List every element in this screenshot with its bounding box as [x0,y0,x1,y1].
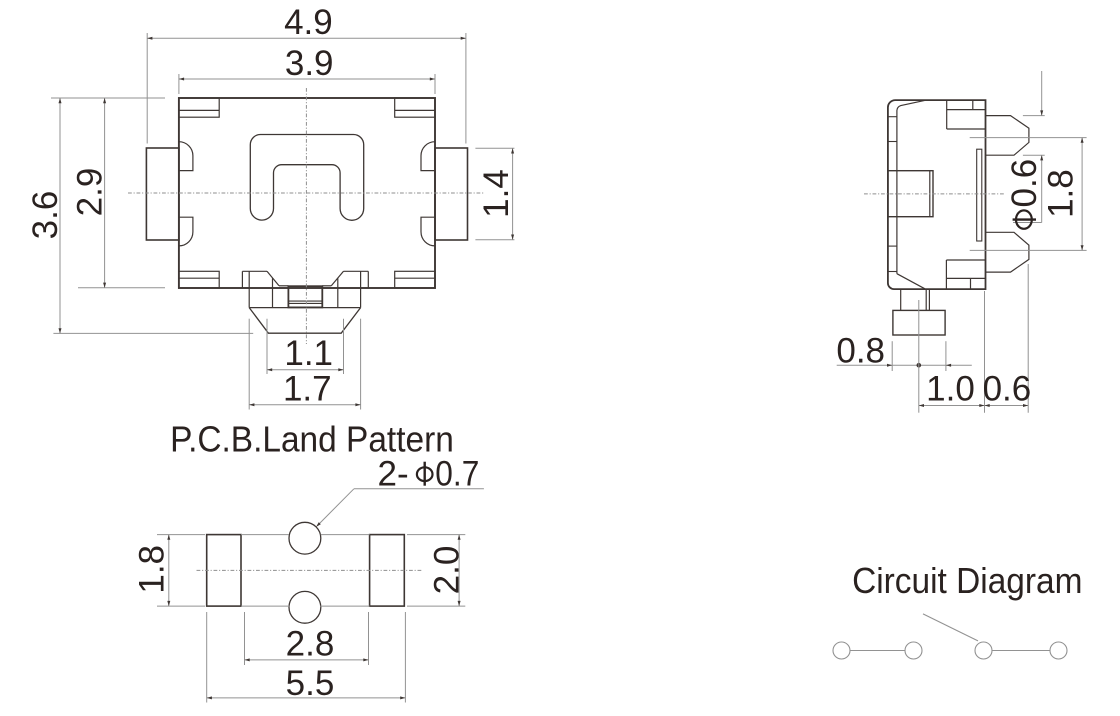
svg-text:1.0: 1.0 [926,369,975,408]
svg-text:2.8: 2.8 [286,625,335,664]
svg-text:P.C.B.Land Pattern: P.C.B.Land Pattern [170,419,454,460]
svg-text:1.1: 1.1 [284,334,333,373]
svg-text:3.6: 3.6 [26,191,65,240]
svg-text:0.8: 0.8 [836,331,885,370]
svg-text:2.9: 2.9 [70,168,109,217]
svg-text:1.4: 1.4 [477,169,516,218]
svg-text:Circuit Diagram: Circuit Diagram [852,560,1082,601]
svg-text:1.8: 1.8 [1042,169,1081,218]
svg-text:2-: 2- [378,455,409,494]
svg-text:0.6: 0.6 [983,369,1032,408]
svg-text:5.5: 5.5 [286,664,335,703]
svg-text:0.7: 0.7 [435,455,479,494]
svg-text:3.9: 3.9 [285,44,334,83]
svg-text:4.9: 4.9 [284,3,333,42]
svg-text:1.7: 1.7 [283,369,332,408]
svg-text:2.0: 2.0 [428,546,467,595]
svg-text:1.8: 1.8 [132,545,171,594]
svg-text:0.6: 0.6 [1005,159,1044,208]
